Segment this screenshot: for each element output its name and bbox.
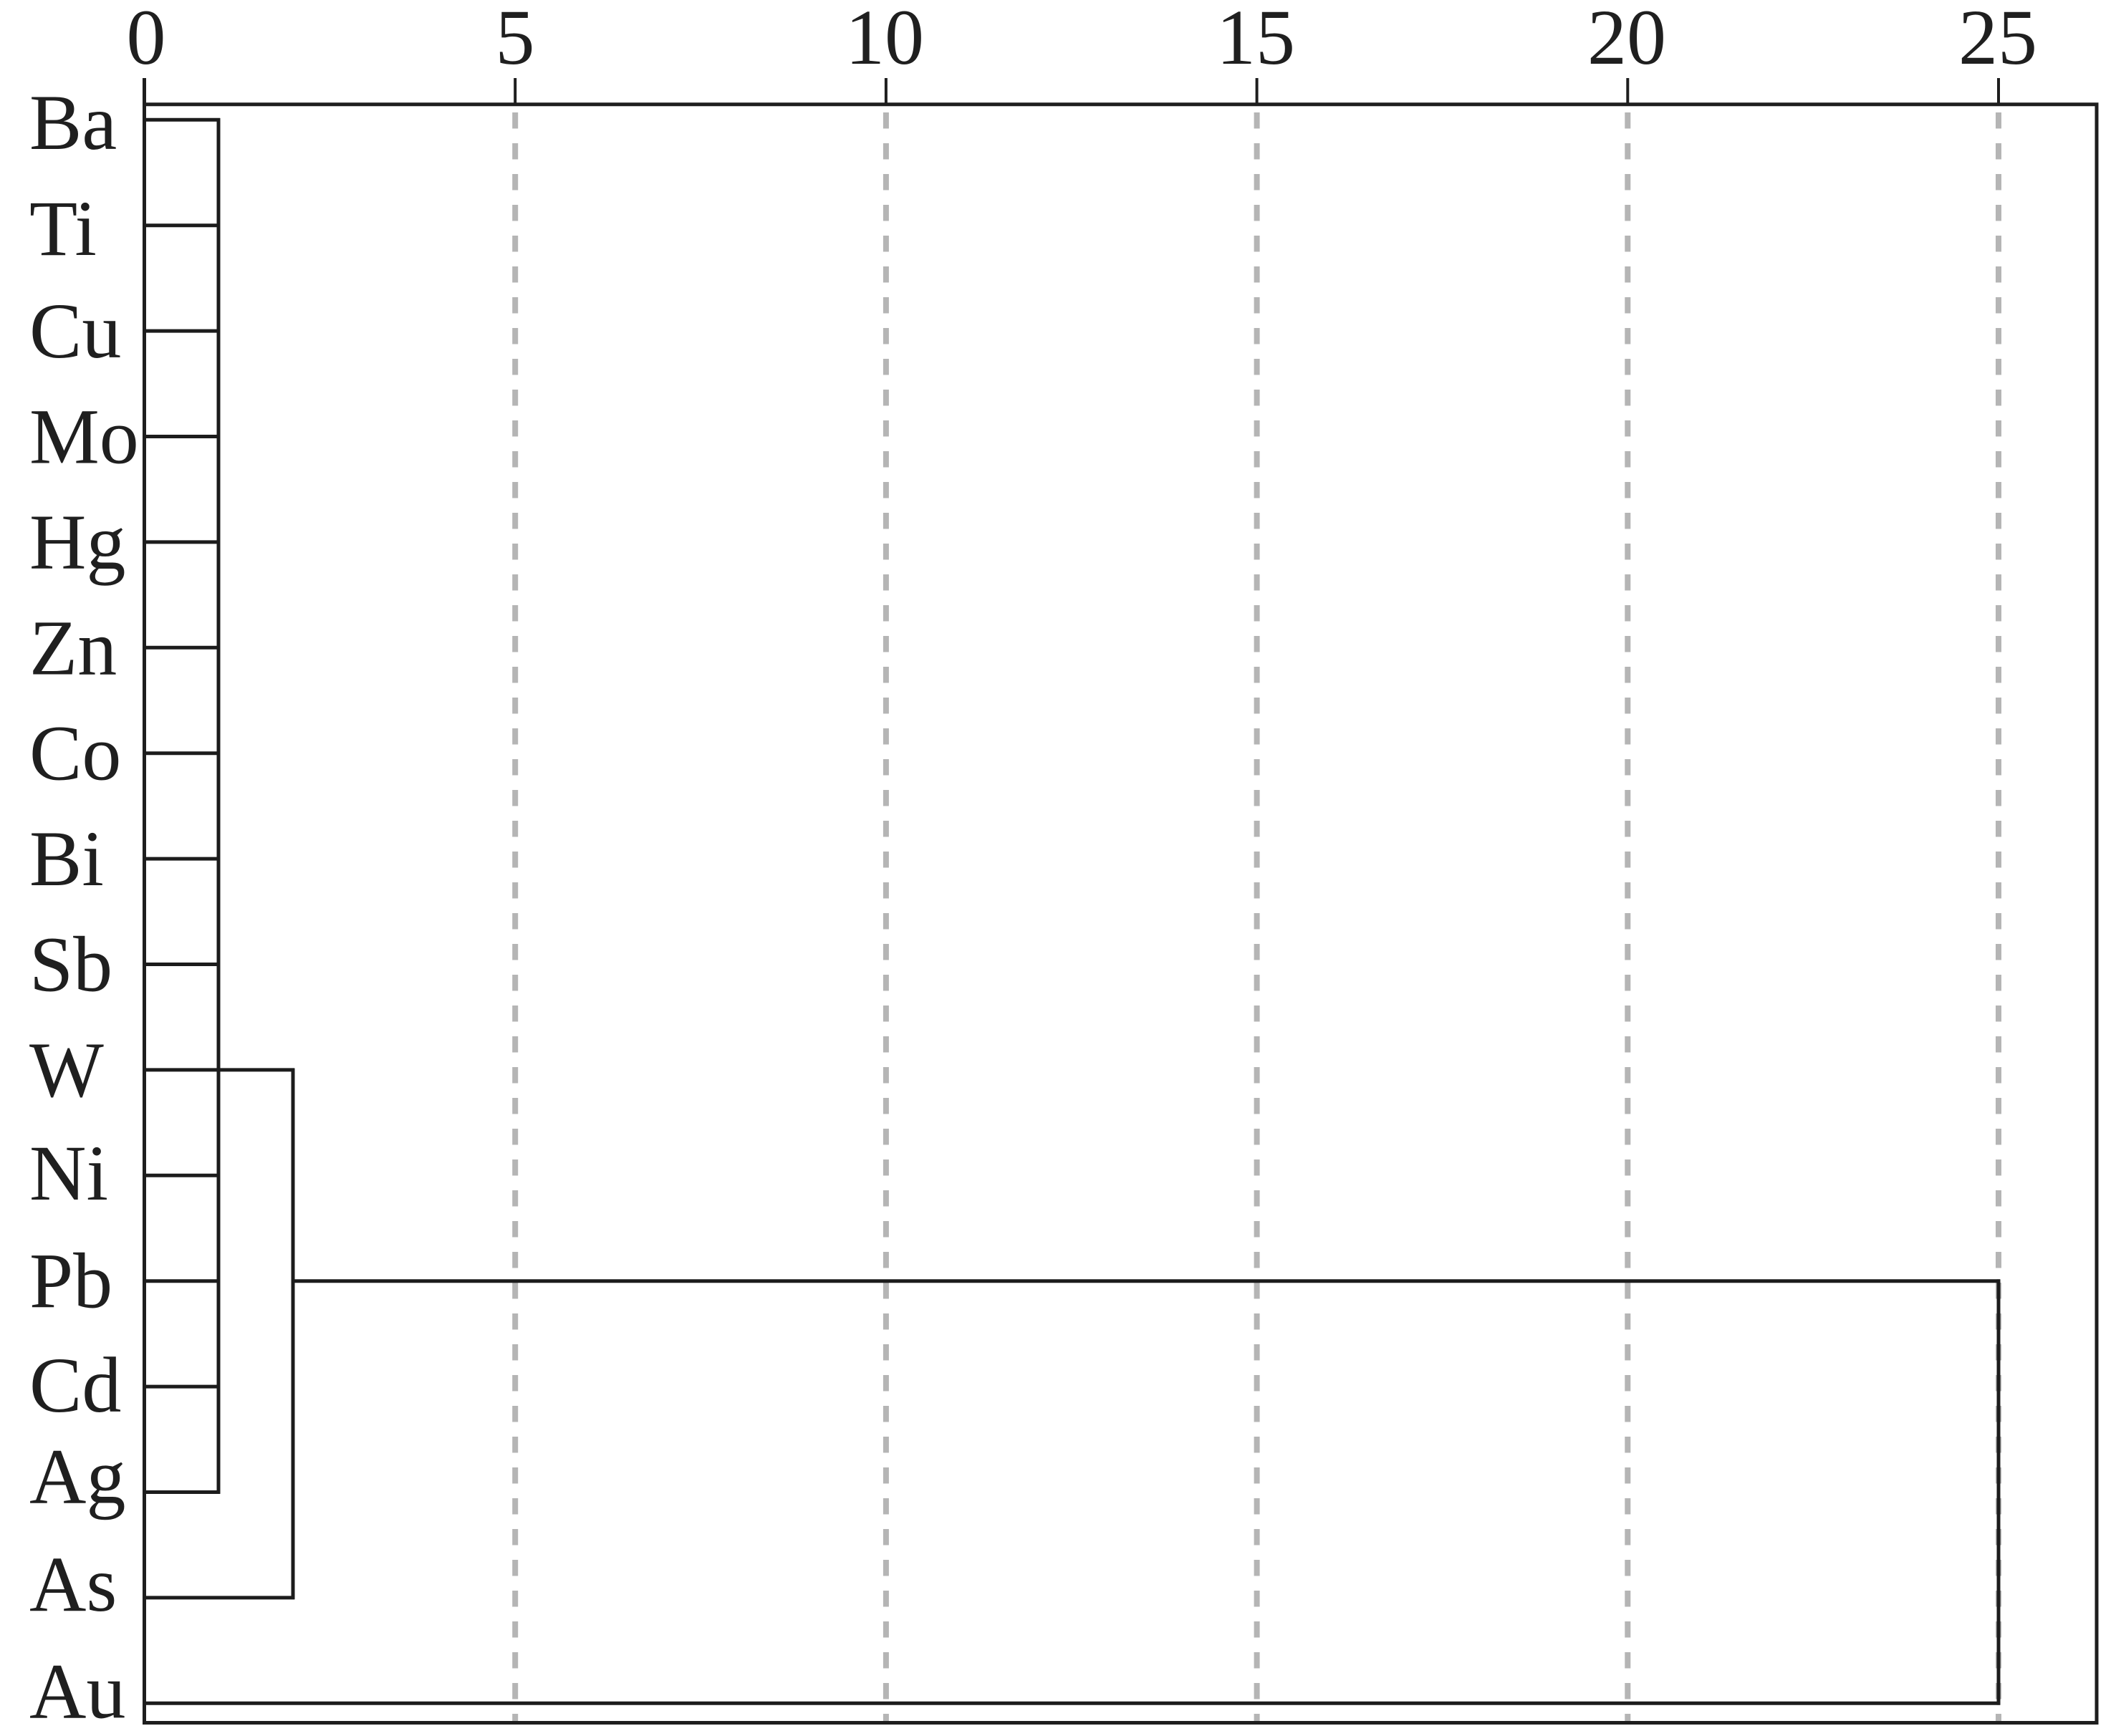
svg-text:Cu: Cu	[29, 287, 121, 375]
svg-text:10: 10	[845, 0, 924, 81]
svg-text:As: As	[29, 1540, 117, 1628]
svg-text:Ba: Ba	[29, 79, 117, 166]
svg-text:W: W	[29, 1026, 104, 1114]
svg-text:Mo: Mo	[29, 393, 139, 481]
svg-text:Cd: Cd	[29, 1341, 121, 1429]
svg-text:15: 15	[1216, 0, 1295, 81]
svg-text:Hg: Hg	[29, 498, 125, 586]
svg-text:20: 20	[1587, 0, 1666, 81]
svg-text:Pb: Pb	[29, 1238, 112, 1325]
svg-text:Ni: Ni	[29, 1129, 108, 1217]
svg-text:Ti: Ti	[29, 185, 97, 272]
svg-text:Bi: Bi	[29, 815, 104, 902]
svg-text:Sb: Sb	[29, 921, 112, 1008]
svg-text:5: 5	[496, 0, 535, 81]
svg-text:Ag: Ag	[29, 1433, 125, 1520]
svg-text:25: 25	[1958, 0, 2037, 81]
svg-text:Au: Au	[29, 1647, 125, 1735]
svg-text:Co: Co	[29, 710, 121, 797]
svg-text:Zn: Zn	[29, 604, 117, 691]
svg-text:0: 0	[127, 0, 166, 81]
